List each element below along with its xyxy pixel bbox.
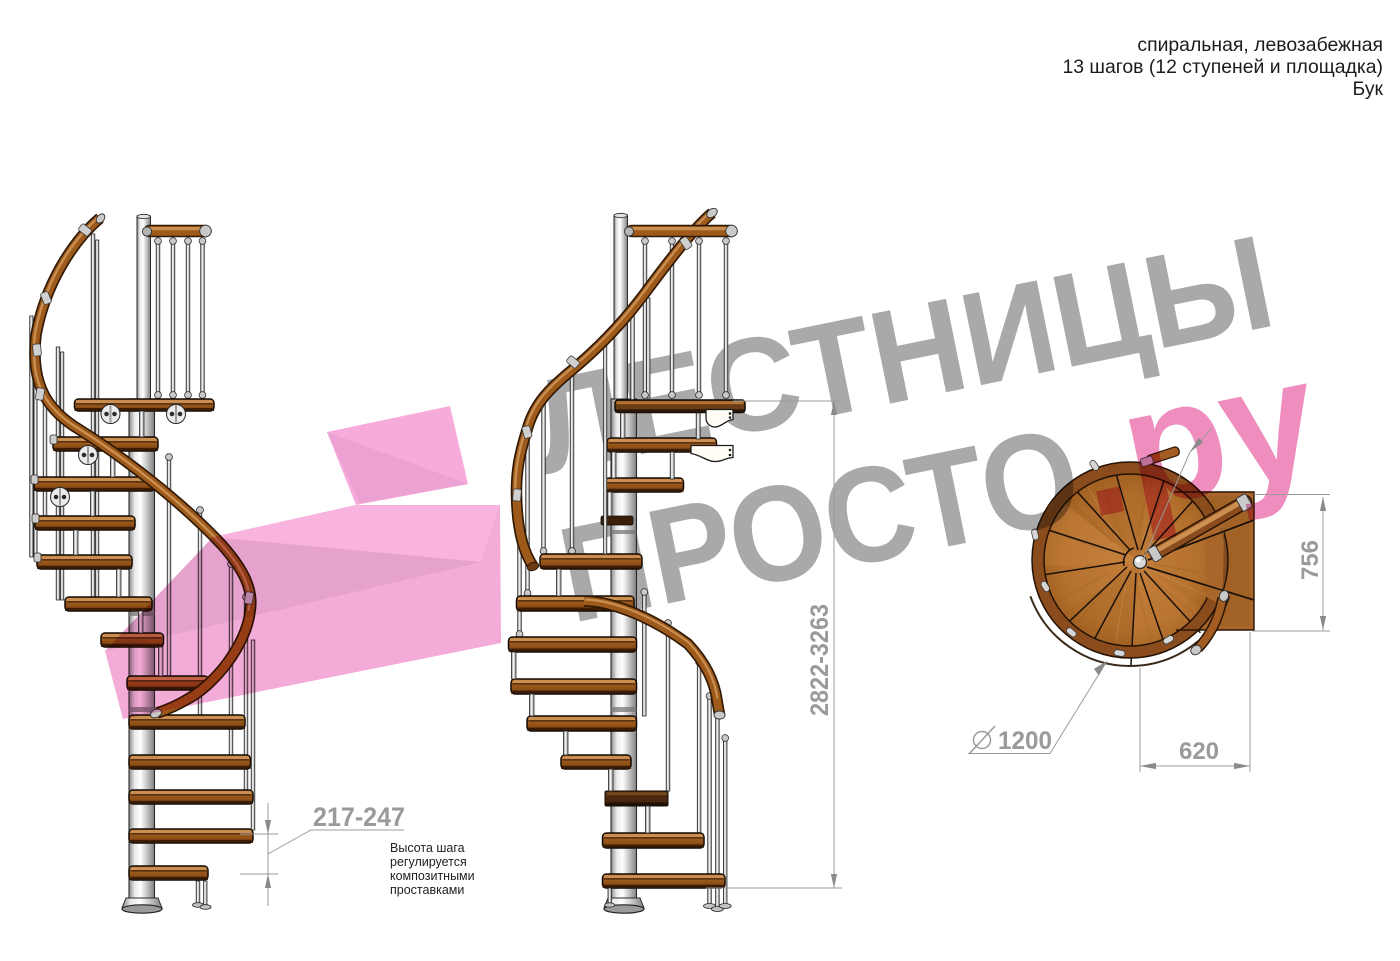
svg-text:620: 620 — [1179, 738, 1219, 765]
svg-text:проставками: проставками — [390, 883, 464, 897]
svg-text:217-247: 217-247 — [313, 802, 405, 832]
svg-text:756: 756 — [1297, 540, 1324, 580]
svg-text:Высота шага: Высота шага — [390, 841, 465, 855]
svg-text:композитными: композитными — [390, 869, 475, 883]
svg-text:регулируется: регулируется — [390, 855, 467, 869]
svg-text:1200: 1200 — [998, 727, 1052, 755]
svg-text:2822-3263: 2822-3263 — [806, 604, 834, 716]
svg-text:13 шагов (12 ступеней и площад: 13 шагов (12 ступеней и площадка) — [1062, 56, 1383, 78]
svg-text:Бук: Бук — [1353, 78, 1384, 100]
svg-text:спиральная, левозабежная: спиральная, левозабежная — [1137, 34, 1383, 56]
